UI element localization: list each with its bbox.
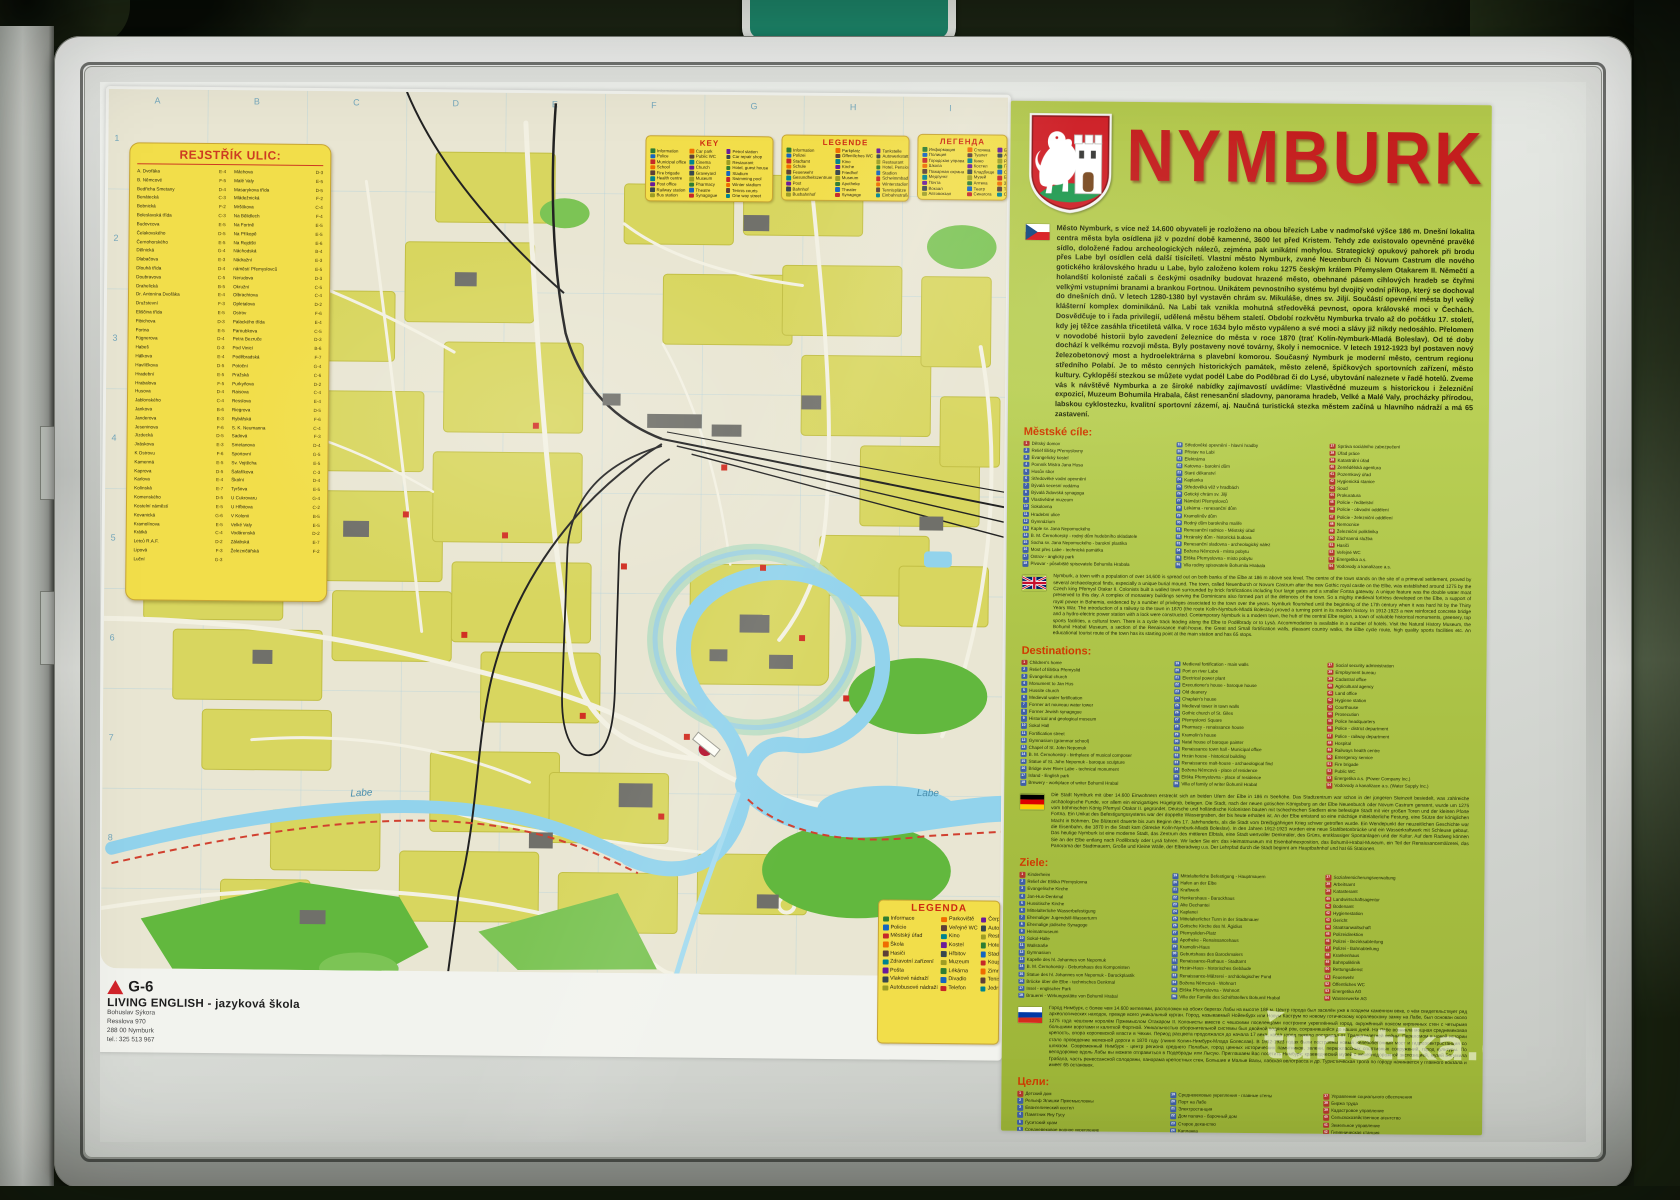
czech-flag-icon: [1026, 224, 1050, 240]
legend-symbol-icon: [882, 977, 888, 983]
destination-item: 21Electrical power plant: [1174, 675, 1317, 682]
watermark-text: turistika.cz: [1264, 1019, 1492, 1071]
legend-box-legenda-ru: ЛЕГЕНДАИнформацияПолицияГородская управа…: [917, 134, 1008, 201]
destination-item: 35Eliška Přemyslovna - place of residenc…: [1173, 774, 1316, 781]
legend-symbol-icon: [726, 166, 731, 171]
destination-number-chip: 8: [1019, 922, 1025, 928]
destination-number-chip: 16: [1020, 766, 1026, 772]
destination-item: 25Středověká věž v hradbách: [1176, 484, 1319, 491]
map-poster: ABCDEFGHI12345678: [100, 86, 1492, 1135]
destination-item: 5Hussite church: [1021, 688, 1164, 695]
destination-item: 53Energetika AG: [1324, 988, 1467, 995]
destination-item: 14B. M. Černohorský - rodný dům hudebníh…: [1023, 533, 1166, 540]
legend-symbol-icon: [689, 182, 694, 187]
destination-item: 34Božena Němcová - místo pobytu: [1176, 548, 1319, 555]
destination-number-chip: 30: [1172, 952, 1178, 958]
destination-item: 1Kinderheim: [1019, 872, 1162, 879]
destination-number-chip: 14: [1021, 752, 1027, 758]
destination-item: 32Hrzán-Haus - historisches Gebäude: [1172, 966, 1315, 973]
destination-list-czech: 1Dětský domov2Reliéf Elišky Přemyslovny3…: [1022, 440, 1472, 572]
destination-item: 27Přemysliden-Platz: [1172, 930, 1315, 937]
legend-symbol-icon: [836, 148, 841, 153]
legend-symbol-icon: [941, 960, 947, 966]
legend-symbol-icon: [876, 188, 881, 193]
destination-item: 31Renaissance town hall - Municipal offi…: [1174, 746, 1317, 753]
svg-text:1: 1: [114, 133, 119, 143]
destination-number-chip: 8: [1023, 490, 1029, 496]
legend-symbol-icon: [941, 925, 947, 931]
legend-item: Bus station: [650, 192, 686, 198]
legend-symbol-icon: [786, 148, 791, 153]
destination-number-chip: 42: [1327, 698, 1333, 704]
destination-number-chip: 40: [1323, 1115, 1329, 1121]
destination-number-chip: 25: [1176, 484, 1182, 490]
destination-number-chip: 7: [1017, 1134, 1023, 1136]
destination-item: 23Staré děkanství: [1176, 470, 1319, 477]
destination-number-chip: 2: [1024, 448, 1030, 454]
destination-item: 13Kapelle des hl. Johannes von Nepomuk: [1019, 957, 1162, 964]
destination-item: 25Medieval tower in town walls: [1174, 703, 1317, 710]
legend-symbol-icon: [883, 916, 889, 922]
destination-item: 20Порт на Лабе: [1170, 1100, 1313, 1107]
destination-item: 11Hradební ulice: [1023, 511, 1166, 518]
destination-number-chip: 48: [1327, 740, 1333, 746]
advertiser-phone: tel.: 325 513 967: [107, 1036, 357, 1047]
destination-item: 47Polizei - Bahnabteilung: [1325, 946, 1468, 953]
legend-symbol-icon: [689, 193, 694, 198]
legend-symbol-icon: [980, 943, 986, 949]
destination-number-chip: 42: [1323, 1129, 1329, 1135]
intro-text-german: Die Stadt Nymburk mit über 14.600 Einwoh…: [1051, 793, 1470, 854]
destination-item: 22Henkershaus - Barockhaus: [1172, 895, 1315, 902]
destination-number-chip: 33: [1174, 760, 1180, 766]
destination-item: 15Statue des hl. Johannes von Nepomuk - …: [1018, 971, 1161, 978]
legend-symbol-icon: [876, 176, 881, 181]
destination-number-chip: 51: [1324, 974, 1330, 980]
destination-number-chip: 47: [1325, 946, 1331, 952]
destination-number-chip: 28: [1176, 506, 1182, 512]
destination-number-chip: 42: [1329, 479, 1335, 485]
destination-number-chip: 52: [1329, 550, 1335, 556]
destination-item: 4Monument to Jan Hus: [1021, 681, 1164, 688]
legend-symbol-icon: [997, 170, 1002, 175]
legend-symbol-icon: [835, 176, 840, 181]
destination-item: 17Ostrov - anglický park: [1022, 554, 1165, 561]
destination-item: 15Socha sv. Jana Nepomuckého - barokní p…: [1023, 540, 1166, 547]
legend-symbol-icon: [726, 155, 731, 160]
hinge: [40, 591, 55, 665]
destination-item: 38Employment bureau: [1327, 669, 1470, 676]
intro-text-english: Nymburk, a town with a population of ove…: [1053, 574, 1472, 641]
destination-item: 34Božena Němcová - place of residence: [1173, 767, 1316, 774]
destination-item: 2Reliéf Elišky Přemyslovny: [1024, 448, 1167, 455]
legend-symbol-icon: [835, 193, 840, 198]
uk-flag-icon: [1022, 575, 1046, 591]
destination-item: 3Evangelical church: [1021, 674, 1164, 681]
destination-item: 10Sokol Hall: [1021, 723, 1164, 730]
destination-number-chip: 41: [1325, 903, 1331, 909]
svg-text:I: I: [949, 103, 952, 113]
destination-number-chip: 31: [1176, 527, 1182, 533]
legend-symbol-icon: [997, 164, 1002, 169]
destination-item: 19Mittelalterliche Befestigung - Hauptma…: [1172, 874, 1315, 881]
list-header-russian: Цели:: [1017, 1076, 1466, 1092]
destination-number-chip: 34: [1176, 548, 1182, 554]
legend-symbol-icon: [689, 154, 694, 159]
destination-item: 24Chaplain's house: [1174, 696, 1317, 703]
legend-symbol-icon: [922, 186, 927, 191]
notice-board-frame: ABCDEFGHI12345678: [54, 36, 1632, 1188]
destination-number-chip: 4: [1019, 893, 1025, 899]
destination-number-chip: 40: [1329, 465, 1335, 471]
legend-symbol-icon: [883, 951, 889, 957]
legend-symbol-icon: [997, 176, 1002, 181]
destination-number-chip: 24: [1176, 477, 1182, 483]
legend-symbol-icon: [726, 171, 731, 176]
destination-item: 13Kaple sv. Jana Nepomuckého: [1023, 526, 1166, 533]
destination-number-chip: 20: [1174, 668, 1180, 674]
destination-number-chip: 22: [1170, 1114, 1176, 1120]
legend-symbol-icon: [876, 149, 881, 154]
destination-item: 43Gericht: [1325, 918, 1468, 925]
street-index-entry: FibichovaD-3: [136, 317, 225, 327]
destination-item: 8Former Jewish synagogue: [1021, 709, 1164, 716]
destination-number-chip: 1: [1017, 1091, 1023, 1097]
svg-text:F: F: [651, 100, 657, 110]
legend-symbol-icon: [835, 182, 840, 187]
destination-item: 9Historical and geological museum: [1021, 716, 1164, 723]
destination-number-chip: 9: [1019, 929, 1025, 935]
list-header-german: Ziele:: [1020, 857, 1469, 873]
destination-number-chip: 19: [1170, 1092, 1176, 1098]
destination-number-chip: 52: [1326, 769, 1332, 775]
grass: [0, 1186, 1680, 1200]
legend-symbol-icon: [786, 153, 791, 158]
legend-symbol-icon: [786, 164, 791, 169]
list-header-czech: Městské cíle:: [1024, 425, 1473, 441]
destination-number-chip: 29: [1176, 513, 1182, 519]
destination-number-chip: 7: [1019, 915, 1025, 921]
destination-number-chip: 38: [1327, 669, 1333, 675]
legend-symbol-icon: [980, 969, 986, 975]
destination-item: 10Sokol-Halle: [1019, 936, 1162, 943]
destination-number-chip: 21: [1170, 1107, 1176, 1113]
destination-item: 42Гигиеническая станция: [1323, 1129, 1466, 1135]
legend-item: Lékárna: [941, 967, 977, 976]
destination-item: 6Středověké vodní opevnění: [1023, 476, 1166, 483]
legend-symbol-icon: [689, 188, 694, 193]
destination-item: 41Pozemkový úřad: [1329, 472, 1472, 479]
legend-symbol-icon: [981, 917, 987, 923]
destination-item: 45Police headquarters: [1327, 719, 1470, 726]
destination-number-chip: 8: [1021, 709, 1027, 715]
destination-item: 39Cadastral office: [1327, 677, 1470, 684]
destination-number-chip: 48: [1325, 953, 1331, 959]
svg-text:C: C: [353, 97, 360, 107]
svg-text:7: 7: [109, 732, 114, 742]
legend-symbol-icon: [876, 165, 881, 170]
legend-symbol-icon: [835, 170, 840, 175]
legend-symbol-icon: [650, 171, 655, 176]
destination-item: 51Feuerwehr: [1324, 974, 1467, 981]
destination-item: 22Дом палача - барочный дом: [1170, 1114, 1313, 1121]
destination-number-chip: 13: [1023, 526, 1029, 532]
destination-item: 44Prosecution: [1327, 712, 1470, 719]
legend-symbol-icon: [876, 182, 881, 187]
destination-number-chip: 33: [1176, 541, 1182, 547]
legend-box-key: KEYInformationPoliceMunicipal officeScho…: [645, 135, 774, 202]
intro-text-czech: Město Nymburk, s více než 14.600 obyvate…: [1055, 223, 1475, 423]
destination-item: 45Polizeidirektion: [1325, 932, 1468, 939]
destination-number-chip: 36: [1173, 781, 1179, 787]
legend-item: Одностороннее движение: [997, 192, 1007, 198]
destination-item: 27Přemyslovci Square: [1174, 718, 1317, 725]
destination-item: 9Vlastivědné muzeum: [1023, 497, 1166, 504]
svg-text:H: H: [850, 102, 857, 112]
destination-item: 40Zemědělská agentura: [1329, 465, 1472, 472]
destination-number-chip: 50: [1329, 536, 1335, 542]
destination-number-chip: 21: [1172, 888, 1178, 894]
destination-item: 30Natal house of baroque painter: [1174, 739, 1317, 746]
destination-item: 6Medieval water fortification: [1021, 695, 1164, 702]
destination-item: 33Renaissance malt-house - archaeologica…: [1174, 760, 1317, 767]
destination-item: 53Energetika a.s. (Power Company Inc.): [1326, 776, 1469, 783]
legend-symbol-icon: [998, 159, 1003, 164]
destination-item: 23Old deanery: [1174, 689, 1317, 696]
destination-item: 1Children's home: [1021, 659, 1164, 666]
destination-item: 40Landwirtschaftsagentur: [1325, 896, 1468, 903]
legend-item: Busbahnhof: [786, 192, 832, 198]
legend-symbol-icon: [726, 188, 731, 193]
destination-item: 26Gotische Kirche des hl. Ägidius: [1172, 923, 1315, 930]
destination-list-german: 1Kinderheim2Relief der Eliška Přemyslovn…: [1018, 872, 1468, 1004]
destination-number-chip: 45: [1327, 719, 1333, 725]
destination-number-chip: 49: [1329, 529, 1335, 535]
svg-text:A: A: [155, 95, 161, 105]
destination-item: 3Evangelische Kirche: [1019, 886, 1162, 893]
destination-number-chip: 41: [1327, 691, 1333, 697]
destination-item: 37Správa sociálního zabezpečení: [1330, 443, 1473, 450]
destination-number-chip: 10: [1023, 504, 1029, 510]
street-index: REJSTŘÍK ULIC: A. DvořákaE-4B. NěmcovéF-…: [125, 142, 331, 602]
legend-symbol-icon: [998, 153, 1003, 158]
destination-item: 8Ehemalige jüdische Synagoge: [1019, 922, 1162, 929]
destination-number-chip: 1: [1021, 659, 1027, 665]
legend-item: Jednosměrná ulice: [980, 985, 1000, 994]
destination-number-chip: 49: [1327, 747, 1333, 753]
destination-item: 5Гуситский храм: [1017, 1119, 1160, 1126]
destination-item: 33Renesanční sladovna - archeologický ná…: [1176, 541, 1319, 548]
destination-number-chip: 22: [1176, 463, 1182, 469]
destination-number-chip: 10: [1021, 723, 1027, 729]
destination-item: 22Katovna - barokní dům: [1176, 463, 1319, 470]
destination-number-chip: 34: [1171, 980, 1177, 986]
destination-number-chip: 16: [1018, 978, 1024, 984]
destination-number-chip: 44: [1329, 493, 1335, 499]
coat-of-arms: [1026, 111, 1115, 214]
destination-number-chip: 22: [1172, 895, 1178, 901]
legend-symbol-icon: [883, 933, 889, 939]
destination-number-chip: 49: [1325, 960, 1331, 966]
destination-number-chip: 20: [1170, 1100, 1176, 1106]
destination-item: 4Pomník Mistra Jana Husa: [1023, 462, 1166, 469]
destination-item: 41Land office: [1327, 691, 1470, 698]
destination-item: 48Hospital: [1327, 740, 1470, 747]
legend-symbol-icon: [941, 951, 947, 957]
legend-symbol-icon: [980, 977, 986, 983]
destination-number-chip: 51: [1327, 762, 1333, 768]
destination-item: 44Prokuratura: [1329, 493, 1472, 500]
destination-number-chip: 3: [1023, 455, 1029, 461]
destination-item: 51Hasiči: [1329, 543, 1472, 550]
destination-item: 2Relief der Eliška Přemyslovna: [1019, 879, 1162, 886]
destination-item: 41Земельное управление: [1323, 1122, 1466, 1129]
destination-item: 46Policie - obvodní oddělení: [1329, 507, 1472, 514]
legend-symbol-icon: [967, 159, 972, 164]
destination-item: 13Chapel of St. John Nepomuk: [1021, 745, 1164, 752]
destination-number-chip: 7: [1021, 702, 1027, 708]
destination-number-chip: 30: [1174, 739, 1180, 745]
destination-number-chip: 31: [1172, 959, 1178, 965]
destination-number-chip: 46: [1327, 726, 1333, 732]
destination-number-chip: 39: [1325, 889, 1331, 895]
destination-item: 48Krankenhaus: [1325, 953, 1468, 960]
destination-item: 43Courthouse: [1327, 705, 1470, 712]
section-czech: Město Nymburk, s více než 14.600 obyvate…: [1024, 223, 1475, 423]
legend-symbol-icon: [922, 169, 927, 174]
legend-symbol-icon: [786, 170, 791, 175]
destination-item: 54Vodovody a kanalizace a.s.: [1328, 564, 1471, 571]
legend-symbol-icon: [835, 165, 840, 170]
svg-text:4: 4: [112, 433, 117, 443]
destination-number-chip: 19: [1177, 442, 1183, 448]
destination-number-chip: 54: [1328, 564, 1334, 570]
destination-number-chip: 36: [1175, 563, 1181, 569]
destination-number-chip: 11: [1021, 730, 1027, 736]
destination-number-chip: 3: [1021, 674, 1027, 680]
destination-item: 26Gothic church of St. Giles: [1174, 711, 1317, 718]
legend-box-legende: LEGENDEInformationPolizeiStadtamtSchuleF…: [781, 134, 910, 201]
destination-number-chip: 25: [1174, 703, 1180, 709]
legend-symbol-icon: [941, 943, 947, 949]
destination-item: 49Railways health centre: [1327, 747, 1470, 754]
destination-item: 47Policie - železniční oddělení: [1329, 514, 1472, 521]
destination-number-chip: 16: [1023, 547, 1029, 553]
destination-number-chip: 43: [1327, 705, 1333, 711]
legend-symbol-icon: [726, 194, 731, 199]
destination-number-chip: 40: [1327, 684, 1333, 690]
legend-symbol-icon: [980, 952, 986, 958]
svg-text:3: 3: [112, 333, 117, 343]
destination-item: 7Former art nouveau water tower: [1021, 702, 1164, 709]
legend-symbol-icon: [922, 153, 927, 158]
hinge: [40, 426, 55, 500]
legend-symbol-icon: [835, 159, 840, 164]
destination-number-chip: 41: [1323, 1122, 1329, 1128]
turistika-watermark: turistika.cz: [1264, 1019, 1492, 1071]
legend-symbol-icon: [922, 175, 927, 180]
destination-item: 12Gymnasium (grammar school): [1021, 737, 1164, 744]
destination-item: 50Záchranná služba: [1329, 536, 1472, 543]
destination-item: 5Husův sbor: [1023, 469, 1166, 476]
destination-number-chip: 38: [1330, 450, 1336, 456]
destination-number-chip: 48: [1329, 521, 1335, 527]
destination-number-chip: 42: [1325, 910, 1331, 916]
legend-symbol-icon: [883, 942, 889, 948]
destination-number-chip: 53: [1326, 776, 1332, 782]
legend-symbol-icon: [980, 986, 986, 992]
legend-symbol-icon: [689, 149, 694, 154]
destination-item: 14B. M. Černohorský - Geburtshaus des Ko…: [1019, 964, 1162, 971]
destination-item: 3Evangelický kostel: [1023, 455, 1166, 462]
destination-number-chip: 1: [1024, 440, 1030, 446]
legend-symbol-icon: [980, 960, 986, 966]
destination-item: 12Gymnasium: [1019, 950, 1162, 957]
legend-item: Autobusové nádraží: [882, 984, 938, 993]
destination-number-chip: 38: [1325, 882, 1331, 888]
destination-item: 51Fire brigade: [1327, 762, 1470, 769]
legend-symbol-icon: [883, 968, 889, 974]
destination-number-chip: 12: [1019, 950, 1025, 956]
destination-item: 19Medieval fortification - main walls: [1174, 661, 1317, 668]
destination-item: 52Veřejné WC: [1329, 550, 1472, 557]
destination-number-chip: 23: [1174, 689, 1180, 695]
legend-symbol-icon: [922, 180, 927, 185]
destination-item: 21Elektrárna: [1176, 456, 1319, 463]
destination-list-russian: 1Детский дом2Рельеф Элишки Пржемысловны3…: [1016, 1091, 1466, 1135]
info-panel: NYMBURK Město Nymburk, s více než 14.600…: [1001, 101, 1492, 1136]
destination-number-chip: 6: [1021, 695, 1027, 701]
legend-item: Synagoge: [835, 192, 873, 198]
legend-symbol-icon: [876, 154, 881, 159]
destination-number-chip: 29: [1174, 732, 1180, 738]
street-index-entry: LučníG-3: [133, 555, 222, 565]
destination-item: 18Pivovar - působiště spisovatele Bohumi…: [1022, 561, 1165, 568]
destination-item: 31Renesanční radnice - Městský úřad: [1176, 527, 1319, 534]
legend-symbol-icon: [981, 934, 987, 940]
legend-symbol-icon: [997, 192, 1002, 197]
destination-item: 4Jan-Hus-Denkmal: [1019, 893, 1162, 900]
destination-number-chip: 54: [1324, 996, 1330, 1002]
destination-number-chip: 41: [1329, 472, 1335, 478]
svg-text:Labe: Labe: [350, 787, 373, 799]
legend-symbol-icon: [967, 192, 972, 197]
destination-item: 46Police - district department: [1327, 726, 1470, 733]
destination-item: 17Insel - englischer Park: [1018, 986, 1161, 993]
destination-item: 6Mittelalterliche Wasserbefestigung: [1019, 908, 1162, 915]
destination-number-chip: 53: [1328, 557, 1334, 563]
destination-item: 12Gymnázium: [1023, 518, 1166, 525]
destination-number-chip: 14: [1019, 964, 1025, 970]
street-index-entry: ŽelezničářskáF-2: [230, 547, 319, 557]
destination-number-chip: 51: [1329, 543, 1335, 549]
legend-symbol-icon: [876, 193, 881, 198]
destination-number-chip: 18: [1022, 561, 1028, 567]
destination-number-chip: 23: [1176, 470, 1182, 476]
advertiser-note: G-6 LIVING ENGLISH - jazyková škola Bohu…: [107, 978, 358, 1047]
destination-item: 39Katastrální úřad: [1329, 458, 1472, 465]
legend-item: Kostel: [941, 941, 977, 950]
destination-item: 52Öffentliches WC: [1324, 981, 1467, 988]
destination-item: 40Сельскохозяйственное агентство: [1323, 1115, 1466, 1122]
destination-number-chip: 15: [1021, 759, 1027, 765]
legend-item: Muzeum: [941, 958, 977, 967]
legend-symbol-icon: [689, 177, 694, 182]
destination-item: 35Eliška Přemyslovna - místo pobytu: [1175, 555, 1318, 562]
board-mat: ABCDEFGHI12345678: [100, 82, 1586, 1142]
destination-item: 29Kramolín-Haus: [1172, 944, 1315, 951]
destination-item: 28Lékárna - renesanční dům: [1176, 506, 1319, 513]
